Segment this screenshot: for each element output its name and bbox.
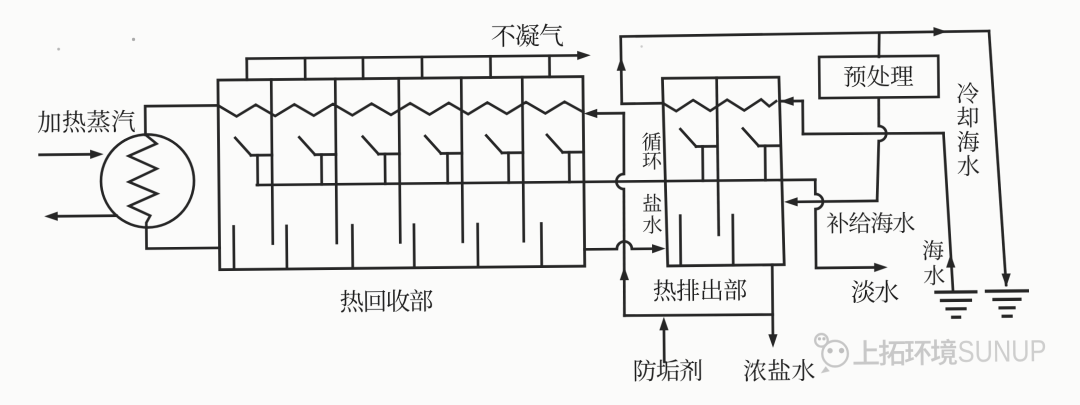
svg-text:SUNUP: SUNUP	[957, 333, 1046, 369]
